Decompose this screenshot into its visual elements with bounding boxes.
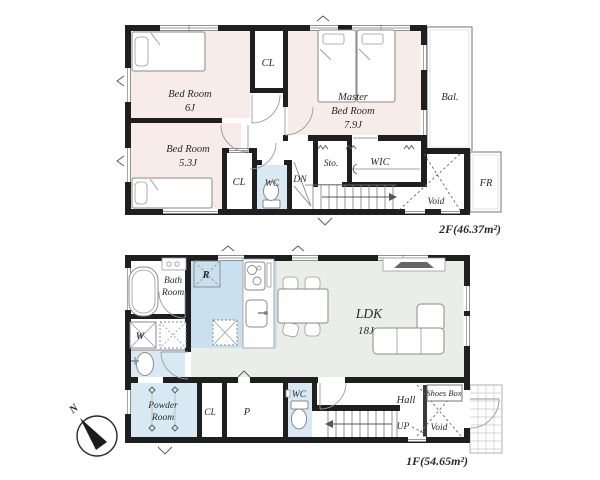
bed-5j [132, 178, 212, 208]
ldk-name: LDK [355, 306, 383, 321]
window [292, 256, 318, 261]
window [125, 390, 131, 414]
wc-1f-label: WC [292, 390, 307, 400]
floor-1f: Bath Room R W Powder Room CL P WC LDK 18… [125, 246, 503, 468]
window [160, 26, 218, 31]
bedroom6-size: 6J [185, 103, 196, 114]
window [125, 68, 131, 102]
free-room-label: FR [479, 178, 493, 189]
storage-label: Sto. [324, 159, 339, 169]
door-bedroom6 [252, 95, 280, 123]
floor-plan-drawing: Bed Room 6J CL Master Bed Room 7.9J Bal.… [0, 0, 600, 480]
wic-label: WIC [370, 157, 390, 168]
closet-bottom-label: CL [233, 177, 246, 188]
bath-name2: Room [161, 288, 184, 298]
washer-label: W [136, 332, 145, 342]
tv-board [383, 258, 445, 271]
kitchen-counter [243, 259, 274, 348]
compass: N [66, 401, 117, 456]
bedroom5-name: Bed Room [166, 144, 210, 155]
bedroom6-name: Bed Room [168, 89, 212, 100]
bath-vanity [162, 258, 186, 270]
bath-name1: Bath [164, 276, 182, 286]
entrance-porch [470, 385, 502, 453]
window [421, 45, 427, 70]
stairs-down-label: DN [292, 175, 307, 185]
kitchen-island [213, 320, 237, 345]
bathtub [129, 267, 158, 316]
void-2f-label: Void [428, 197, 445, 207]
sliding-door [318, 183, 342, 187]
hall-label: Hall [396, 395, 416, 406]
window [405, 209, 425, 214]
window [464, 286, 470, 311]
floor1-area-label: 1F(54.65m²) [406, 454, 468, 468]
ldk-size: 18J [358, 325, 375, 337]
compass-needle [80, 418, 107, 450]
window [408, 437, 426, 442]
wc-2f-label: WC [265, 179, 280, 189]
stairs-up-label: UP [397, 422, 410, 432]
powder-name1: Powder [147, 401, 178, 411]
floor-2f: Bed Room 6J CL Master Bed Room 7.9J Bal.… [117, 16, 501, 236]
laundry-space [160, 322, 186, 348]
window [441, 209, 460, 214]
floor2-area-label: 2F(46.37m²) [438, 222, 501, 236]
floor-plan-page: Bed Room 6J CL Master Bed Room 7.9J Bal.… [0, 0, 600, 480]
bedroom5-size: 5.3J [179, 158, 198, 169]
sliding-door [353, 136, 377, 141]
bed-6j [132, 32, 205, 71]
window [464, 316, 470, 346]
window [218, 256, 244, 261]
window [125, 148, 131, 182]
window [163, 209, 218, 214]
window [421, 110, 427, 135]
master-name1: Master [337, 92, 369, 103]
closet-top-label: CL [262, 58, 275, 69]
pantry-label: P [243, 407, 251, 418]
shoes-box-label: Shoes Box [426, 388, 461, 398]
void-1f-label: Void [431, 423, 448, 433]
powder-name2: Room [151, 413, 174, 423]
refrigerator-label: R [201, 270, 209, 281]
balcony-label: Bal. [441, 92, 458, 103]
balcony-2f [427, 27, 472, 150]
compass-north-label: N [66, 401, 81, 417]
master-name2: Bed Room [331, 106, 375, 117]
master-size: 7.9J [344, 120, 363, 131]
closet-1f-label: CL [204, 408, 216, 418]
